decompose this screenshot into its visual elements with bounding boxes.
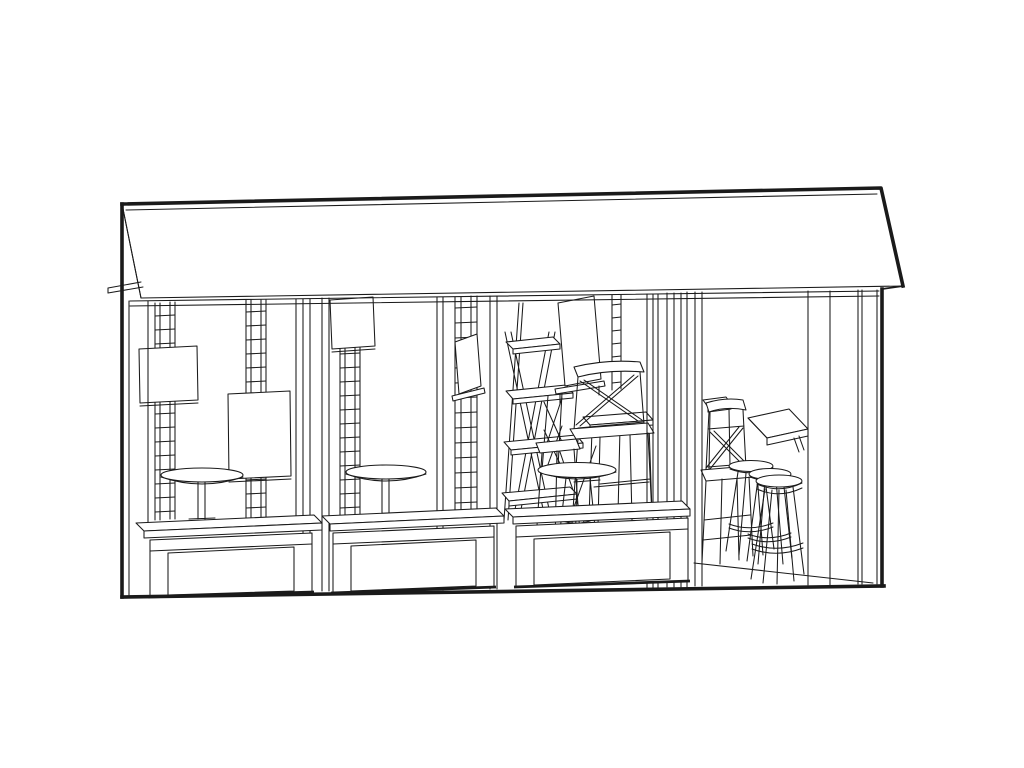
hanging-sign xyxy=(330,297,375,352)
picture-frame-2 xyxy=(228,391,291,482)
line-drawing-canvas xyxy=(0,0,1024,768)
planter-bench-2 xyxy=(322,508,504,593)
storefront-line-drawing xyxy=(0,0,1024,768)
awning-roof xyxy=(108,188,903,298)
planter-bench-1 xyxy=(136,515,322,597)
planter-bench-3 xyxy=(505,501,690,587)
